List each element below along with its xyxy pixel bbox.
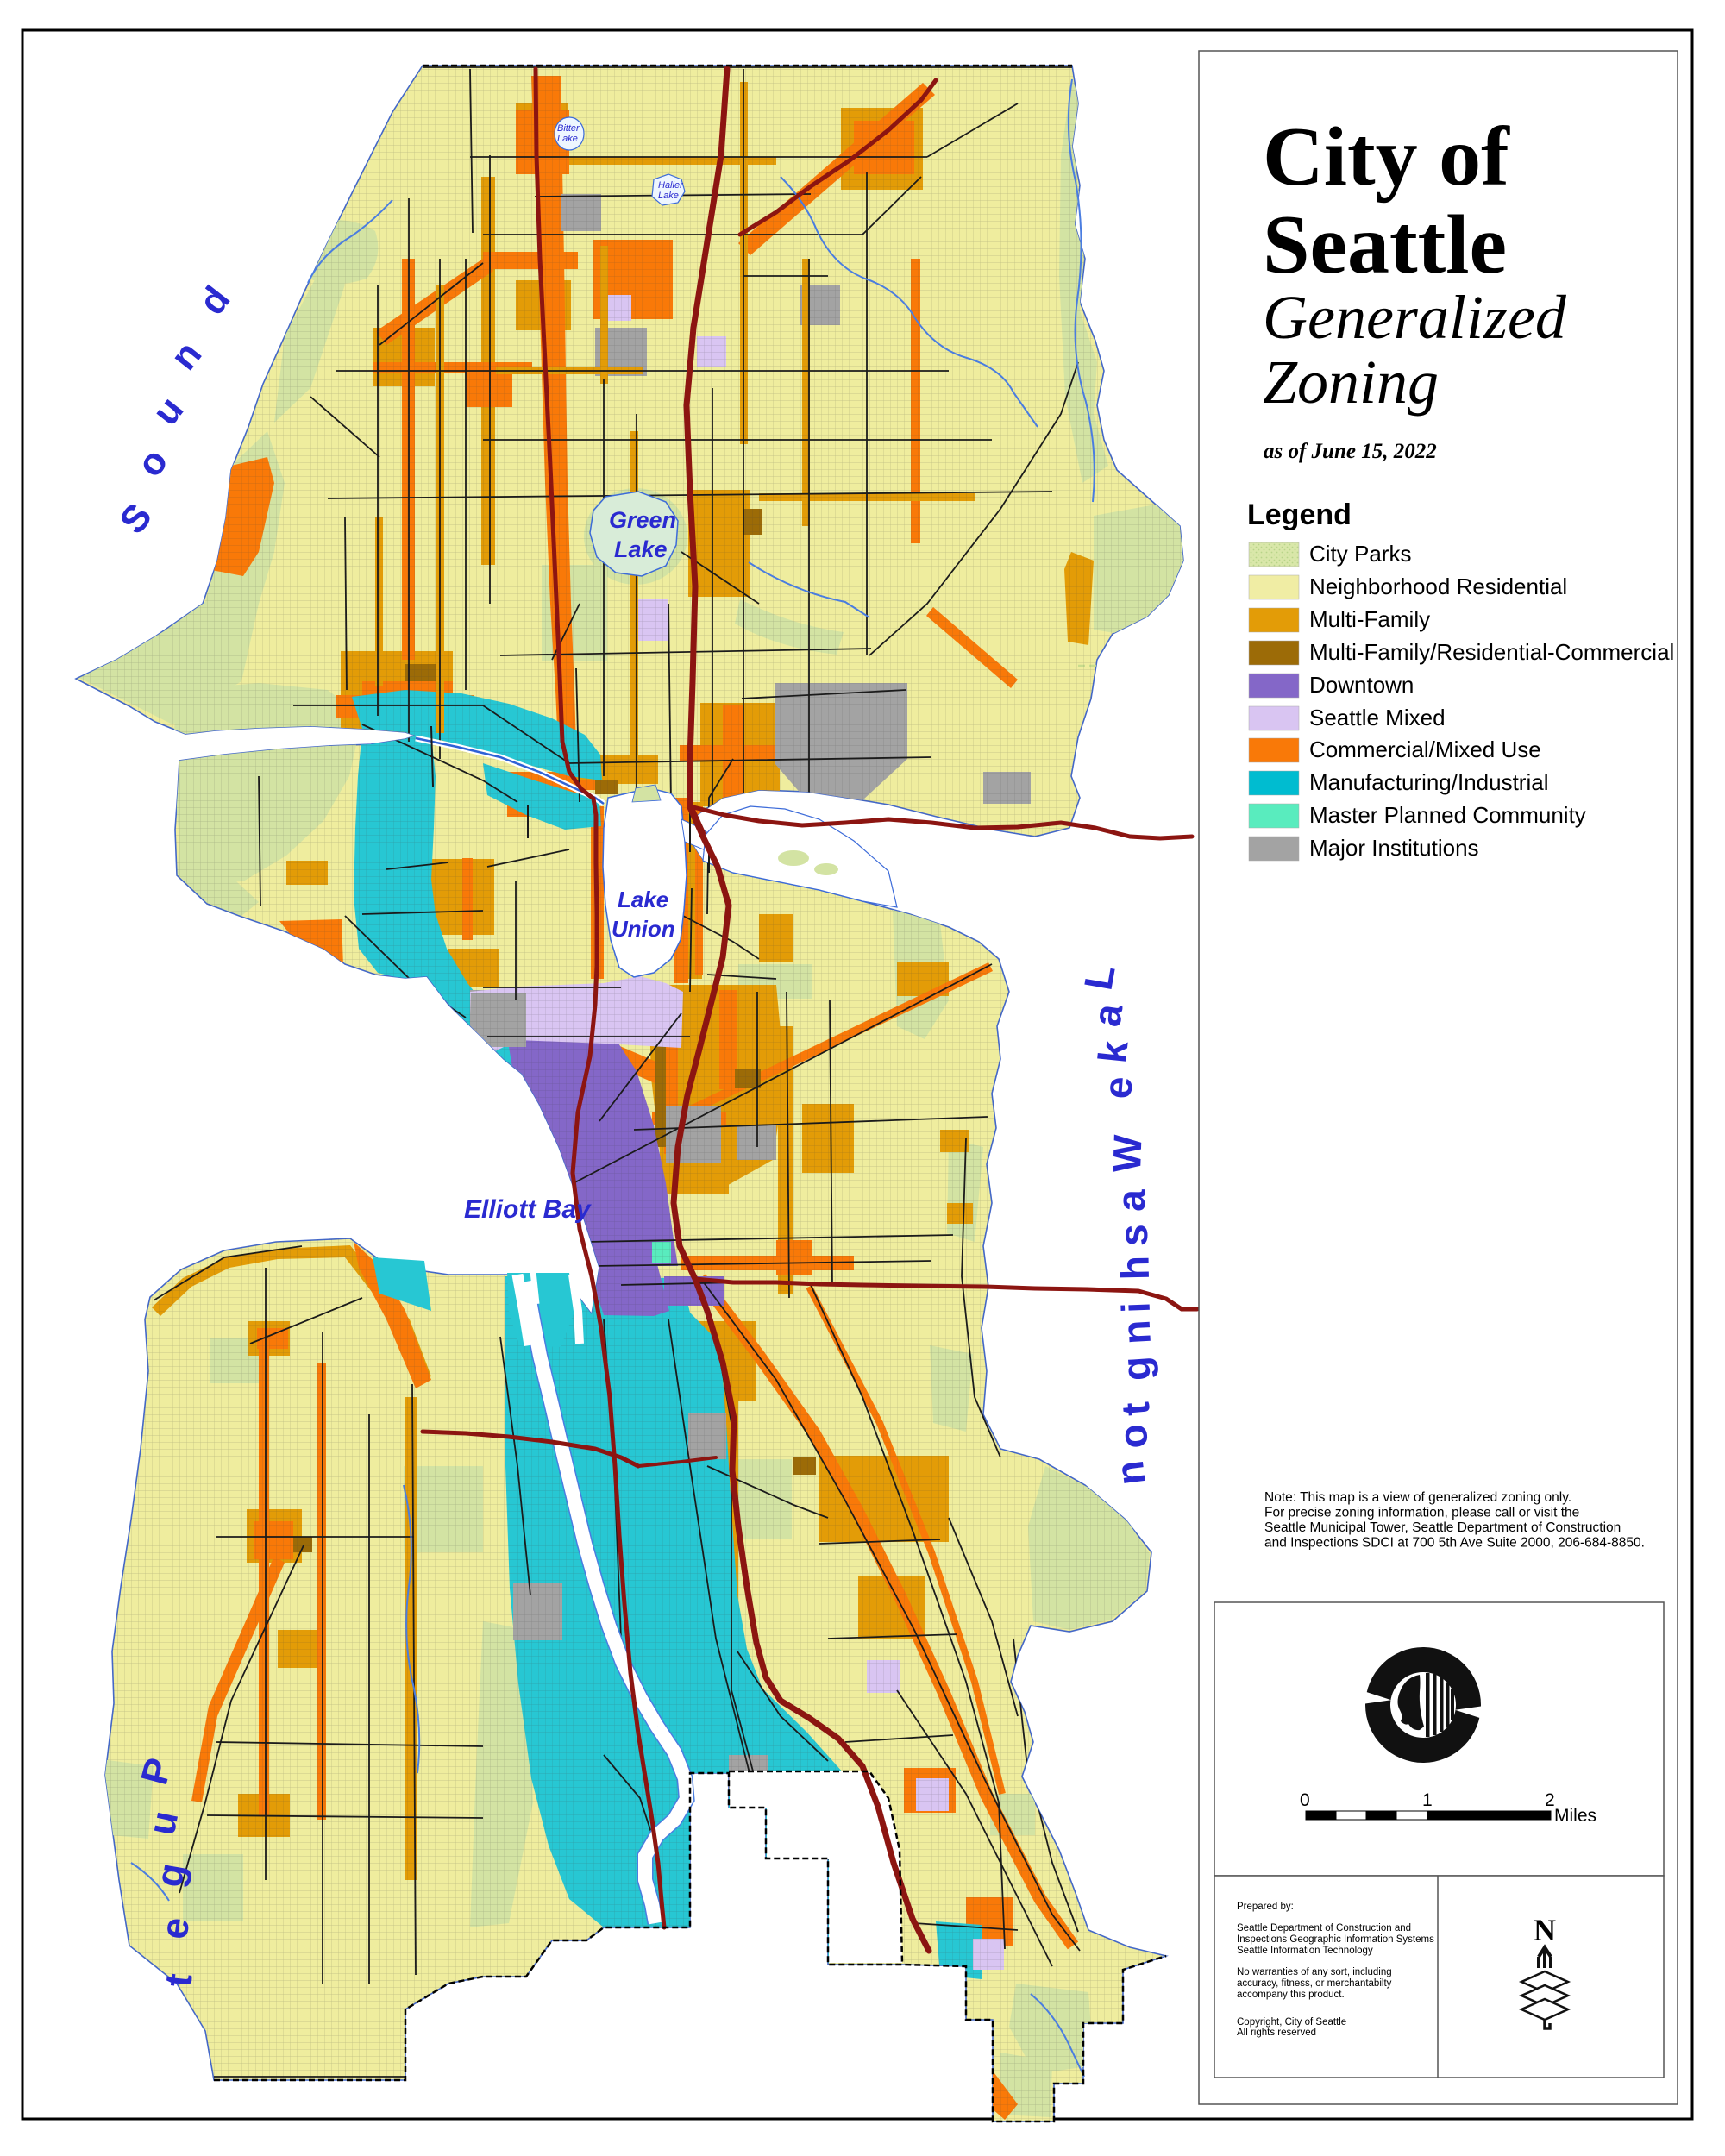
svg-text:h: h	[1113, 1256, 1157, 1281]
svg-text:L: L	[1076, 962, 1124, 993]
svg-text:City of: City of	[1263, 110, 1510, 204]
svg-text:Miles: Miles	[1554, 1806, 1596, 1826]
svg-text:No warranties of any sort, inc: No warranties of any sort, including	[1237, 1967, 1392, 1977]
svg-text:Seattle: Seattle	[1263, 198, 1507, 291]
svg-text:0: 0	[1300, 1790, 1310, 1810]
svg-text:a: a	[1108, 1188, 1153, 1212]
svg-text:Downtown: Downtown	[1309, 672, 1414, 698]
svg-text:Multi-Family: Multi-Family	[1309, 606, 1430, 632]
svg-text:Master Planned Community: Master Planned Community	[1309, 802, 1586, 828]
svg-text:City Parks: City Parks	[1309, 541, 1411, 567]
svg-text:Lake: Lake	[618, 887, 668, 912]
svg-text:All rights reserved: All rights reserved	[1237, 2028, 1316, 2038]
svg-text:g: g	[1113, 1355, 1159, 1382]
svg-text:Bitter: Bitter	[557, 123, 580, 134]
svg-text:N: N	[1534, 1913, 1556, 1947]
svg-text:s: s	[1111, 1224, 1156, 1246]
svg-text:S: S	[111, 496, 160, 542]
svg-text:Generalized: Generalized	[1263, 283, 1567, 352]
svg-text:accompany this product.: accompany this product.	[1237, 1990, 1345, 2000]
svg-text:Lake: Lake	[557, 134, 578, 144]
svg-text:o: o	[1109, 1422, 1157, 1451]
svg-text:accuracy, fitness, or merchant: accuracy, fitness, or merchantabilty	[1237, 1978, 1392, 1989]
svg-text:Union: Union	[612, 916, 675, 942]
svg-text:i: i	[1113, 1301, 1158, 1314]
svg-text:as of June 15, 2022: as of June 15, 2022	[1264, 440, 1437, 463]
svg-text:Commercial/Mixed Use: Commercial/Mixed Use	[1309, 736, 1541, 762]
svg-text:Major Institutions: Major Institutions	[1309, 835, 1479, 861]
svg-text:Neighborhood Residential: Neighborhood Residential	[1309, 573, 1567, 599]
svg-text:Haller: Haller	[658, 180, 684, 191]
svg-text:a: a	[1083, 1000, 1131, 1029]
svg-text:1: 1	[1422, 1790, 1433, 1810]
svg-text:Seattle Information Technology: Seattle Information Technology	[1237, 1946, 1373, 1956]
svg-text:Inspections Geographic Informa: Inspections Geographic Information Syste…	[1237, 1934, 1434, 1945]
svg-text:Seattle Mixed: Seattle Mixed	[1309, 705, 1446, 730]
svg-text:Legend: Legend	[1247, 498, 1352, 531]
svg-text:Manufacturing/Industrial: Manufacturing/Industrial	[1309, 769, 1548, 795]
svg-text:and Inspections SDCI at 700 5t: and Inspections SDCI at 700 5th Ave Suit…	[1264, 1536, 1645, 1551]
svg-text:Lake: Lake	[658, 191, 679, 201]
svg-text:Lake: Lake	[614, 536, 668, 562]
svg-text:2: 2	[1545, 1790, 1555, 1810]
svg-text:Prepared by:: Prepared by:	[1237, 1902, 1294, 1912]
svg-text:Seattle Department of Construc: Seattle Department of Construction and	[1237, 1923, 1411, 1934]
svg-text:Zoning: Zoning	[1263, 348, 1439, 417]
svg-text:u: u	[144, 389, 191, 433]
svg-text:Multi-Family/Residential-Comme: Multi-Family/Residential-Commercial	[1309, 639, 1674, 665]
svg-text:Green: Green	[609, 507, 676, 533]
svg-text:t: t	[1113, 1401, 1158, 1418]
svg-text:Copyright, City of Seattle: Copyright, City of Seattle	[1237, 2017, 1346, 2028]
svg-text:W: W	[1104, 1134, 1151, 1174]
svg-text:n: n	[162, 334, 210, 378]
svg-text:d: d	[191, 279, 238, 323]
svg-text:For precise zoning information: For precise zoning information, please c…	[1264, 1506, 1579, 1520]
svg-text:k: k	[1089, 1038, 1136, 1065]
svg-text:Seattle Municipal Tower, Seatt: Seattle Municipal Tower, Seattle Departm…	[1264, 1520, 1621, 1535]
svg-text:Elliott Bay: Elliott Bay	[464, 1195, 592, 1224]
svg-text:n: n	[1107, 1458, 1154, 1488]
svg-text:o: o	[129, 441, 176, 485]
svg-text:e: e	[1095, 1075, 1141, 1100]
svg-text:n: n	[1113, 1319, 1159, 1345]
svg-text:Note: This map is a view of g: Note: This map is a view of generalized …	[1264, 1490, 1571, 1505]
